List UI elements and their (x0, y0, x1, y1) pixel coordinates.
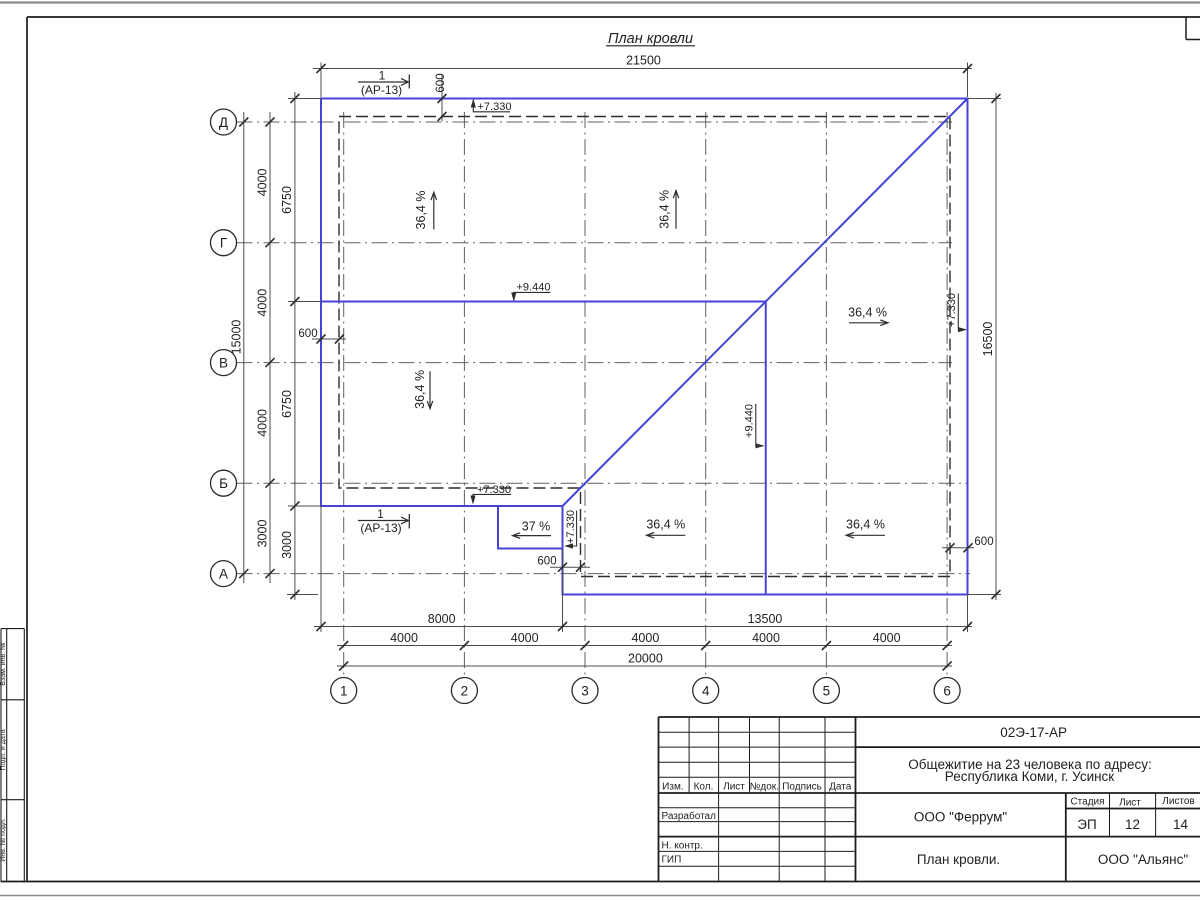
svg-text:600: 600 (974, 536, 993, 548)
svg-text:Инв. № подл.: Инв. № подл. (0, 818, 7, 862)
svg-text:600: 600 (435, 73, 447, 92)
svg-text:План кровли: План кровли (608, 31, 693, 47)
svg-text:1: 1 (379, 68, 386, 82)
svg-text:600: 600 (298, 328, 317, 340)
svg-text:Стадия: Стадия (1070, 797, 1104, 808)
svg-text:Г: Г (220, 236, 228, 251)
svg-text:Листов: Листов (1162, 796, 1195, 807)
svg-text:ООО "Феррум": ООО "Феррум" (914, 809, 1008, 824)
svg-text:36,4 %: 36,4 % (413, 370, 427, 409)
svg-text:4000: 4000 (390, 631, 418, 645)
svg-text:8000: 8000 (428, 612, 456, 626)
svg-text:Дата: Дата (829, 782, 852, 793)
svg-text:Лист: Лист (723, 782, 745, 793)
svg-text:21500: 21500 (626, 54, 661, 68)
svg-text:3000: 3000 (280, 531, 294, 559)
svg-text:Разработал: Разработал (662, 810, 717, 822)
svg-text:+7.330: +7.330 (477, 484, 511, 496)
svg-text:План кровли.: План кровли. (917, 852, 1000, 867)
svg-text:Н. контр.: Н. контр. (662, 841, 703, 852)
svg-text:13500: 13500 (748, 612, 783, 626)
svg-text:Взам. инв. №: Взам. инв. № (0, 642, 7, 685)
svg-text:+7.330: +7.330 (565, 510, 577, 544)
svg-text:02Э-17-АР: 02Э-17-АР (1000, 725, 1067, 740)
svg-text:36,4 %: 36,4 % (658, 190, 672, 229)
svg-text:16500: 16500 (981, 322, 995, 357)
svg-text:6750: 6750 (280, 390, 294, 418)
svg-text:4000: 4000 (752, 631, 780, 645)
svg-text:4000: 4000 (255, 168, 269, 196)
svg-text:Д: Д (219, 115, 228, 130)
svg-text:ГИП: ГИП (662, 855, 682, 866)
svg-text:Подпись: Подпись (782, 782, 822, 793)
svg-text:+9.440: +9.440 (744, 404, 756, 438)
svg-text:(АР-13): (АР-13) (361, 83, 402, 97)
svg-text:+7.330: +7.330 (946, 293, 958, 327)
svg-text:4000: 4000 (873, 631, 901, 645)
svg-text:36,4 %: 36,4 % (646, 518, 685, 532)
svg-text:6: 6 (943, 683, 951, 698)
svg-text:Подп. и дата: Подп. и дата (0, 729, 7, 770)
svg-text:(АР-13): (АР-13) (360, 521, 401, 535)
svg-text:5: 5 (823, 683, 831, 698)
svg-text:12: 12 (1125, 817, 1140, 832)
svg-text:37 %: 37 % (522, 520, 551, 534)
svg-text:600: 600 (537, 556, 556, 568)
svg-text:36,4 %: 36,4 % (848, 306, 887, 320)
svg-text:№док.: №док. (750, 782, 779, 793)
svg-text:А: А (219, 566, 228, 581)
svg-text:Лист: Лист (1119, 798, 1141, 809)
svg-text:В: В (219, 355, 228, 370)
svg-text:3: 3 (581, 683, 589, 698)
svg-text:20000: 20000 (628, 652, 663, 666)
svg-text:3000: 3000 (255, 520, 269, 548)
svg-text:4000: 4000 (255, 409, 269, 437)
svg-text:ООО "Альянс": ООО "Альянс" (1098, 852, 1188, 867)
svg-text:Б: Б (219, 476, 228, 491)
svg-text:4000: 4000 (511, 631, 539, 645)
svg-text:4000: 4000 (631, 631, 659, 645)
svg-text:Кол.: Кол. (694, 782, 714, 793)
svg-text:Республика Коми, г. Усинск: Республика Коми, г. Усинск (945, 769, 1115, 784)
svg-text:2: 2 (461, 683, 469, 698)
svg-text:1: 1 (340, 683, 348, 698)
svg-text:+7.330: +7.330 (478, 101, 512, 113)
svg-text:ЭП: ЭП (1077, 817, 1096, 832)
svg-text:+9.440: +9.440 (517, 282, 551, 294)
svg-text:14: 14 (1173, 817, 1189, 832)
svg-text:15000: 15000 (229, 320, 243, 355)
svg-text:1: 1 (377, 507, 384, 521)
svg-text:4: 4 (702, 683, 710, 698)
svg-text:6750: 6750 (280, 186, 294, 214)
svg-text:36,4 %: 36,4 % (846, 518, 885, 532)
svg-text:36,4 %: 36,4 % (414, 191, 428, 230)
svg-text:Изм.: Изм. (662, 782, 683, 793)
svg-text:4000: 4000 (255, 289, 269, 317)
